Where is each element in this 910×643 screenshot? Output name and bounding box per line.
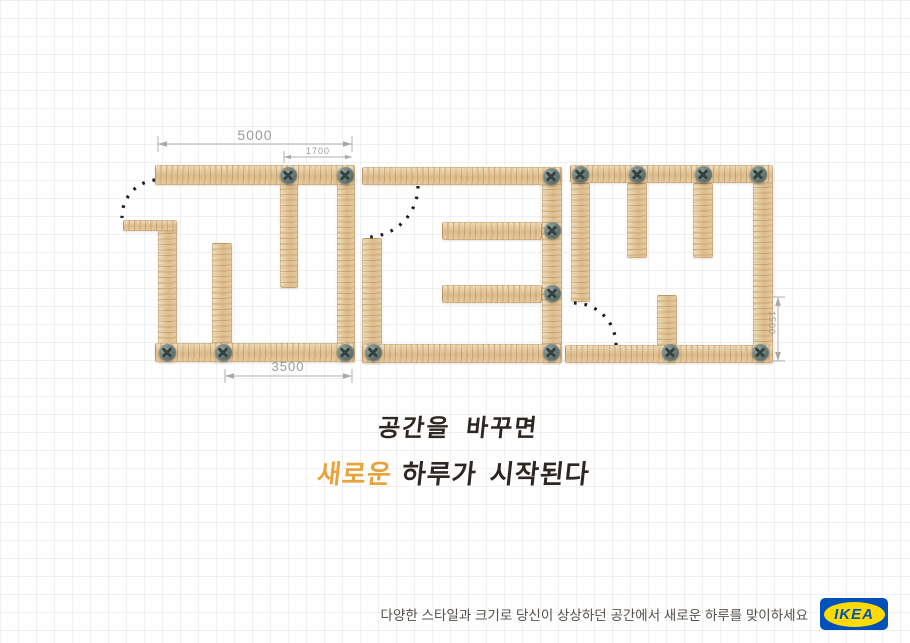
slogan-line-1: 공간을 바꾸면 bbox=[281, 408, 637, 443]
dimension-arrow bbox=[775, 352, 781, 361]
dimension-arrow bbox=[284, 155, 291, 159]
wood-plank bbox=[155, 343, 355, 362]
wood-plank bbox=[155, 165, 355, 185]
screw-icon bbox=[337, 167, 354, 184]
wood-plank bbox=[627, 183, 647, 258]
wood-plank bbox=[280, 183, 298, 288]
slogan: 공간을 바꾸면 새로운하루가 시작된다 bbox=[276, 408, 637, 491]
footer: 다양한 스타일과 크기로 당신이 상상하던 공간에서 새로운 하루를 맞이하세요… bbox=[381, 598, 888, 630]
dimension-label-3500: 3500 bbox=[263, 359, 313, 374]
ikea-logo: IKEA bbox=[820, 598, 888, 630]
dimension-arrow bbox=[775, 297, 781, 306]
door-leaf-plank bbox=[123, 220, 177, 231]
wood-plank bbox=[362, 167, 562, 185]
dimension-arrow bbox=[225, 373, 234, 379]
screw-icon bbox=[695, 166, 712, 183]
wood-plank bbox=[337, 183, 355, 362]
wood-plank bbox=[571, 183, 590, 302]
dimension-arrow bbox=[158, 141, 167, 147]
poster-canvas: 5000 1700 3500 1500 공간을 바꾸면 새로운하루가 시작된다 … bbox=[0, 0, 910, 643]
ikea-logo-oval: IKEA bbox=[824, 602, 885, 627]
wood-plank bbox=[542, 167, 562, 363]
dimension-arrow bbox=[343, 141, 352, 147]
screw-icon bbox=[544, 222, 561, 239]
screw-icon bbox=[159, 344, 176, 361]
slogan-line-2-rest: 하루가 시작된다 bbox=[400, 459, 591, 489]
dimension-label-1500: 1500 bbox=[767, 311, 777, 335]
dimension-arrow bbox=[343, 373, 352, 379]
screw-icon bbox=[280, 167, 297, 184]
screw-icon bbox=[750, 166, 767, 183]
wood-plank bbox=[570, 165, 773, 183]
screw-icon bbox=[544, 285, 561, 302]
wood-plank bbox=[158, 222, 177, 362]
footer-tagline: 다양한 스타일과 크기로 당신이 상상하던 공간에서 새로운 하루를 맞이하세요 bbox=[381, 604, 808, 624]
screw-icon bbox=[752, 344, 769, 361]
screw-icon bbox=[629, 166, 646, 183]
screw-icon bbox=[543, 344, 560, 361]
wood-plank bbox=[442, 285, 542, 303]
door-swing-arc bbox=[366, 186, 418, 237]
screw-icon bbox=[365, 344, 382, 361]
screw-icon bbox=[337, 344, 354, 361]
wood-plank bbox=[693, 183, 713, 258]
door-swing-arc bbox=[574, 303, 616, 345]
screw-icon bbox=[543, 168, 560, 185]
ikea-logo-text: IKEA bbox=[834, 607, 874, 622]
slogan-highlight: 새로운 bbox=[316, 459, 394, 489]
wood-plank bbox=[442, 222, 542, 240]
screw-icon bbox=[572, 166, 589, 183]
screw-icon bbox=[662, 344, 679, 361]
slogan-line-2: 새로운하루가 시작된다 bbox=[276, 454, 632, 491]
wood-plank bbox=[362, 344, 562, 363]
dimension-label-1700: 1700 bbox=[298, 146, 338, 156]
dimension-arrow bbox=[345, 155, 352, 159]
screw-icon bbox=[215, 344, 232, 361]
door-swing-arc bbox=[122, 180, 155, 218]
dimension-label-5000: 5000 bbox=[230, 127, 280, 143]
